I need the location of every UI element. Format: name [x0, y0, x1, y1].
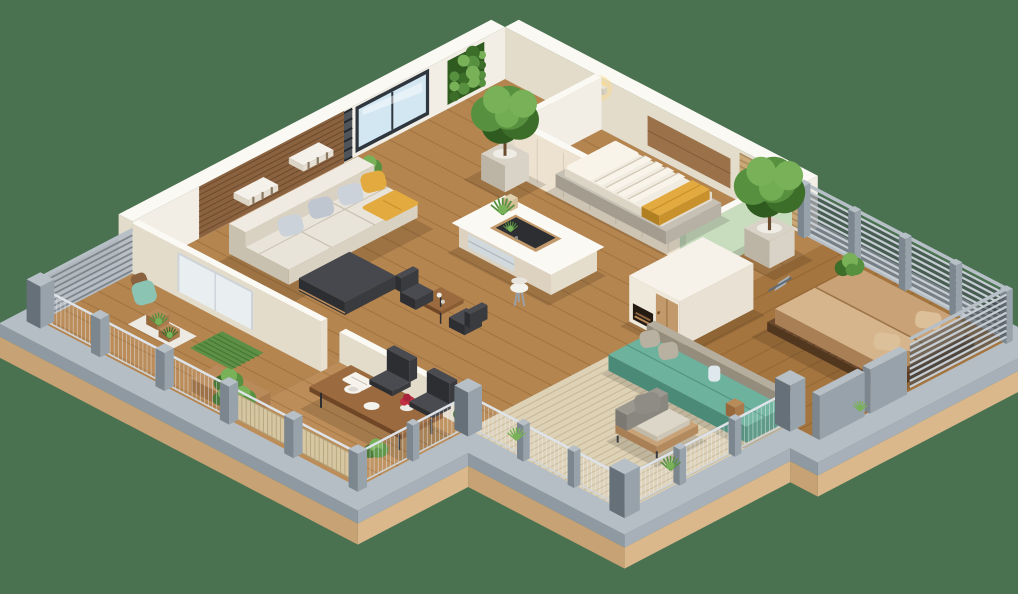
floorplan-stage: [0, 0, 1018, 594]
isometric-floorplan: [0, 0, 1018, 594]
left-corner-post: [27, 272, 55, 328]
